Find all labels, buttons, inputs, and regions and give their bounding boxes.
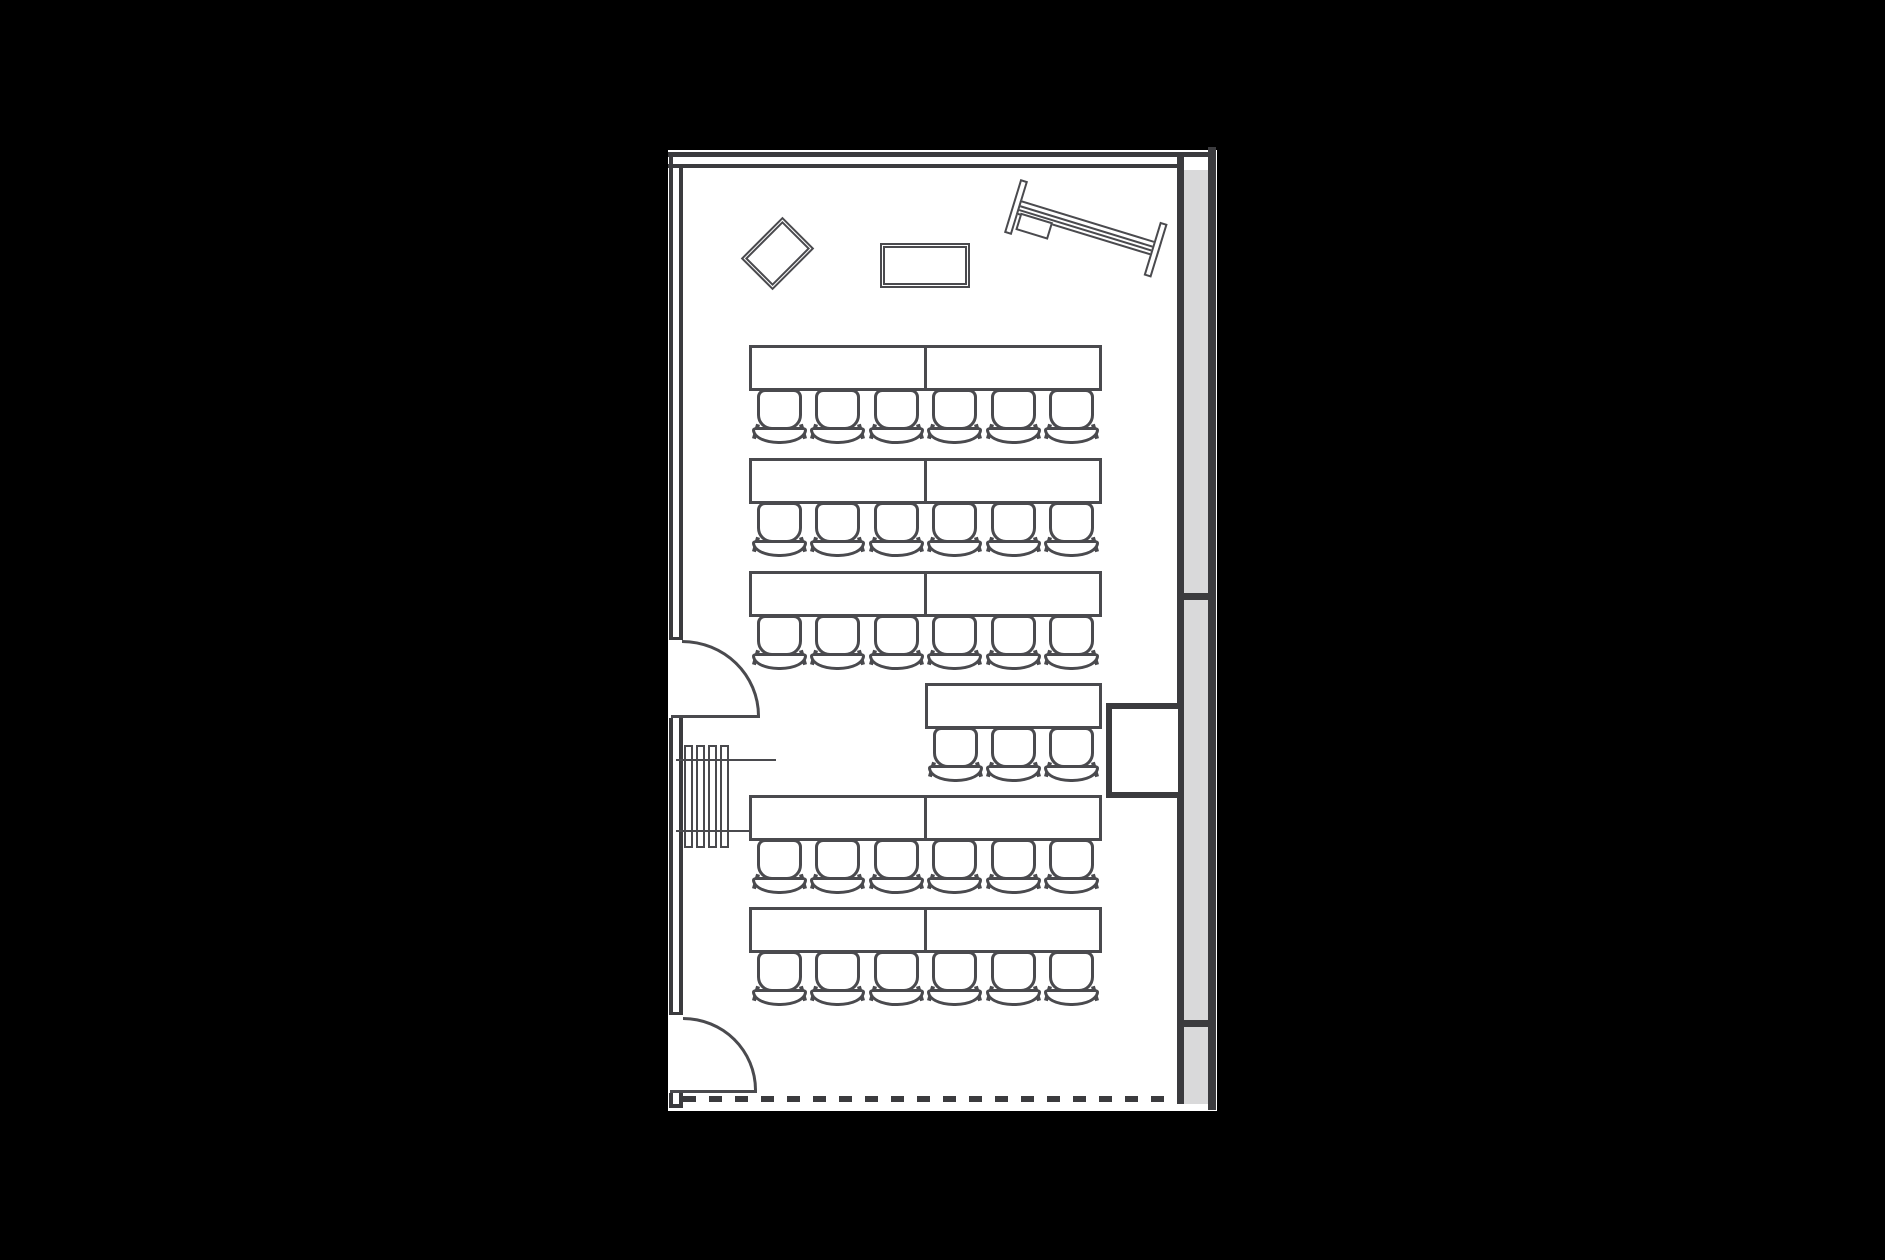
chair-seat [757,951,802,992]
chair [927,951,982,1012]
chair-seat [991,615,1036,656]
chair [810,839,865,900]
desk-group [749,795,1102,841]
chair [1044,839,1099,900]
chair [810,389,865,450]
chair [986,951,1041,1012]
chair [927,502,982,563]
chair-group [749,389,1102,450]
desk [924,571,1102,617]
chair [1044,727,1099,788]
chair [986,839,1041,900]
desk-group [749,571,1102,617]
chair-seat [815,951,860,992]
wall-top-inner [668,164,1184,168]
chair-seat [1049,389,1094,430]
chair-seat [932,502,977,543]
wall-right-fill [1184,170,1208,1104]
desk-row [749,458,1102,563]
chair-seat [757,839,802,880]
chair [752,839,807,900]
wall-right-inner [1177,152,1184,1104]
lectern-box [1106,703,1184,798]
chair-seat [1049,615,1094,656]
wall-top-outer [668,152,1216,157]
desk [749,795,927,841]
chair [869,502,924,563]
chair [1044,502,1099,563]
chair-seat [932,389,977,430]
wall-right-outer [1208,147,1216,1110]
chair-seat [1049,727,1094,768]
chair [869,389,924,450]
chair [810,951,865,1012]
chair-group [749,839,1102,900]
chair-seat [991,951,1036,992]
chair-seat [874,951,919,992]
side-table [880,243,970,288]
door-jamb-bottom [669,1012,683,1015]
floor-plan-canvas [0,0,1885,1260]
chair-seat [1049,502,1094,543]
chair-seat [874,389,919,430]
chair-group [749,615,1102,676]
desk [925,683,1102,729]
chair [928,727,983,788]
chair-seat [1049,839,1094,880]
chair-seat [932,839,977,880]
chair [927,839,982,900]
chair-seat [815,615,860,656]
chair-group [749,951,1102,1012]
chair-seat [991,389,1036,430]
chair [869,839,924,900]
chair-seat [874,502,919,543]
chair-seat [991,839,1036,880]
desk [749,345,927,391]
chair-seat [932,951,977,992]
chair [1044,615,1099,676]
chair [869,951,924,1012]
chair [752,502,807,563]
chair [810,615,865,676]
desk-row [749,907,1102,1012]
desk [749,458,927,504]
desk-row [749,795,1102,900]
chair [869,615,924,676]
door-jamb-middle [669,637,683,640]
desk-row [749,571,1102,676]
desk [924,907,1102,953]
chair [927,615,982,676]
wall-left-outer-middle [669,718,673,1015]
chair [1044,389,1099,450]
door-leaf-middle [671,715,760,718]
wall-left-inner-upper [679,164,683,640]
chair-seat [874,615,919,656]
chair-seat [815,389,860,430]
desk-group [925,683,1102,729]
desk [749,571,927,617]
chair-seat [1049,951,1094,992]
desk-group [749,345,1102,391]
desk-row [749,345,1102,450]
chair [752,615,807,676]
chair-seat [874,839,919,880]
chair-seat [991,727,1036,768]
radiator-slat [708,745,717,848]
chair-seat [933,727,978,768]
wall-corner-stub [669,1104,683,1108]
radiator-slat [720,745,729,848]
chair [986,502,1041,563]
chair [810,502,865,563]
chair-seat [932,615,977,656]
chair-seat [757,502,802,543]
desk-group [749,907,1102,953]
door-leaf-bottom [670,1090,757,1093]
chair [986,389,1041,450]
radiator-slat [684,745,693,848]
dashed-open-boundary [683,1096,1177,1102]
desk-group [749,458,1102,504]
radiator-slat [696,745,705,848]
desk [924,345,1102,391]
chair-group [925,727,1102,788]
chair [927,389,982,450]
desk [924,795,1102,841]
wall-left-outer-upper [669,152,673,640]
chair-seat [991,502,1036,543]
chair [752,951,807,1012]
chair [986,615,1041,676]
desk-row [925,683,1102,788]
chair [752,389,807,450]
desk [924,458,1102,504]
chair-seat [757,389,802,430]
chair [1044,951,1099,1012]
desk [749,907,927,953]
chair-seat [757,615,802,656]
chair-seat [815,839,860,880]
chair-seat [815,502,860,543]
chair [986,727,1041,788]
chair-group [749,502,1102,563]
